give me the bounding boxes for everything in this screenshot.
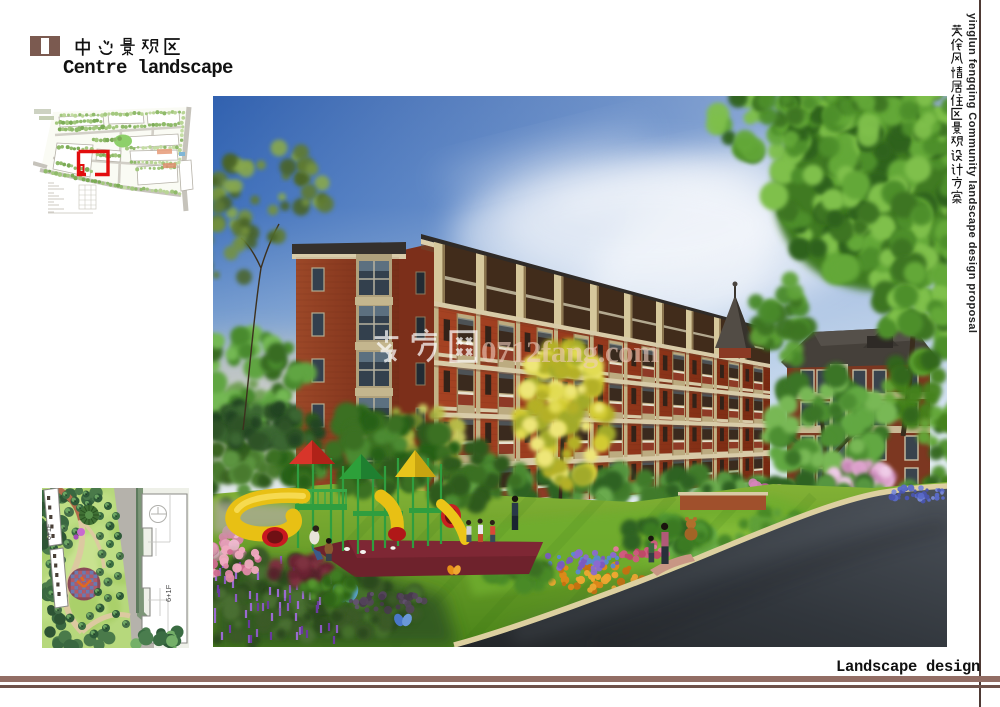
svg-text:6+1F: 6+1F [164, 584, 173, 602]
svg-text:0712fang.com: 0712fang.com [481, 334, 659, 369]
svg-text:6+1F: 6+1F [46, 524, 53, 540]
